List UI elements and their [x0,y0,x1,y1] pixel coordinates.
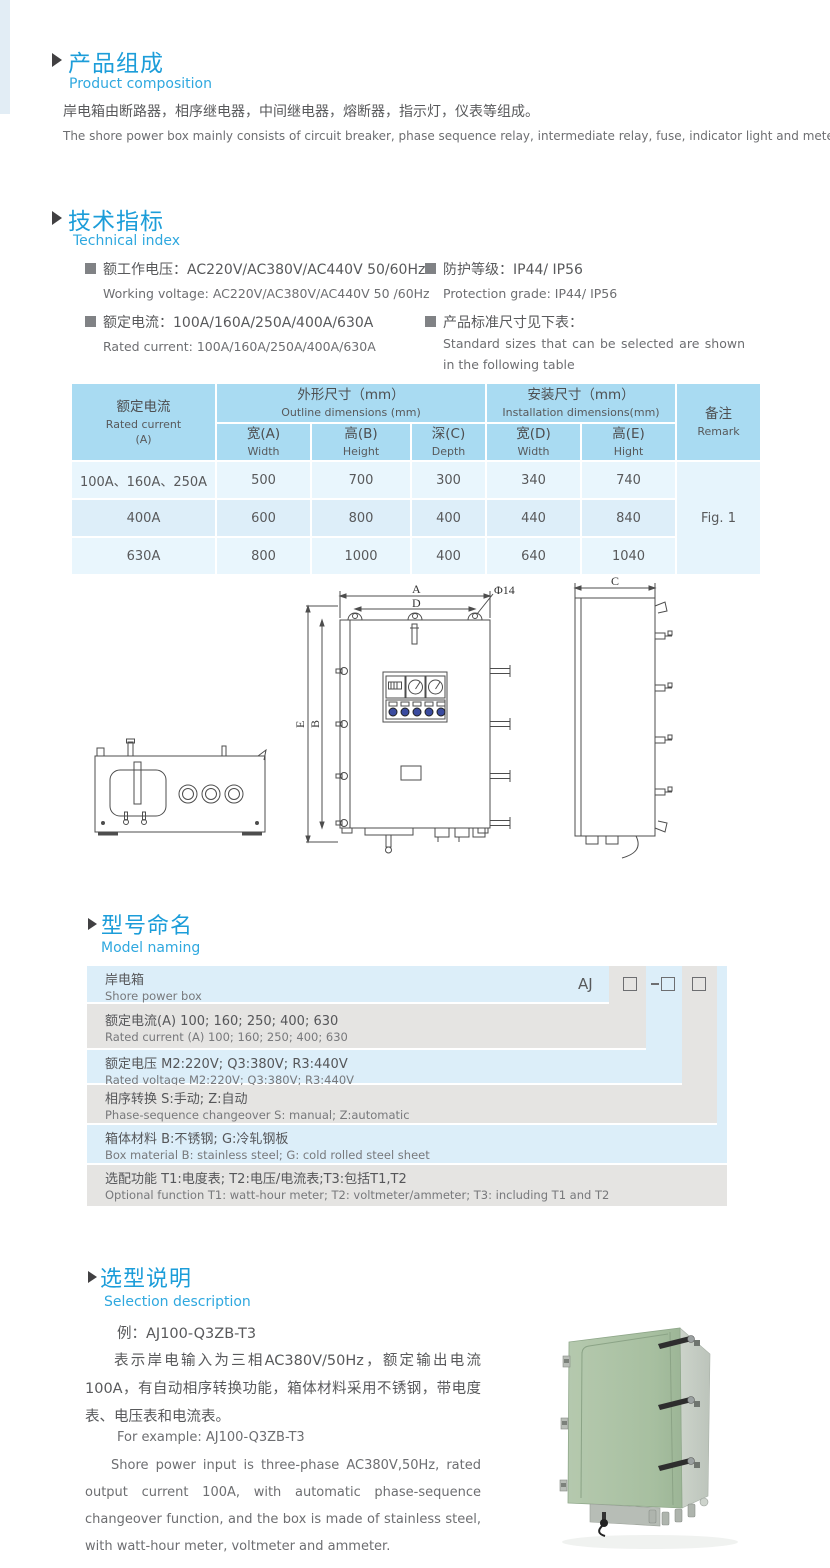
model-row-optional-function: 选配功能 T1:电度表; T2:电压/电流表;T3:包括T1,T2Optiona… [87,1165,727,1206]
spec-rated-current-en: Rated current: 100A/160A/250A/400A/630A [103,339,376,354]
spec-working-voltage-en: Working voltage: AC220V/AC380V/AC440V 50… [103,286,430,301]
model-code-box [692,977,706,991]
cell-rated: 400A [71,499,216,537]
bullet-square-icon [425,316,436,327]
selection-example-en: For example: AJ100-Q3ZB-T3 [117,1430,305,1445]
cell-height-b: 800 [311,499,411,537]
cell-remark: Fig. 1 [676,461,761,575]
box-front-face [568,1328,682,1508]
cell-width-d: 340 [486,461,581,499]
catalog-page: 产品组成 Product composition 岸电箱由断路器，相序继电器，中… [0,0,830,1568]
bullet-square-icon [425,263,436,274]
col-header-rated-current: 额定电流 Rated current (A) [71,383,216,461]
spec-working-voltage-zh: 额工作电压：AC220V/AC380V/AC440V 50/60Hz [85,259,425,279]
page-edge-strip [0,0,10,114]
bottom-view-drawing [95,739,266,834]
cell-width-d: 440 [486,499,581,537]
cell-width-d: 640 [486,537,581,575]
col-header-depth-c: 深(C)Depth [411,423,486,461]
model-row-shore-power-box: 岸电箱Shore power box [87,966,609,1002]
latch-icon [655,631,672,795]
cell-rated: 630A [71,537,216,575]
col-header-install-dims: 安装尺寸（mm） Installation dimensions(mm) [486,383,676,423]
selection-body-en: Shore power input is three-phase AC380V,… [85,1452,481,1560]
spec-protection-zh: 防护等级：IP44/ IP56 [425,259,583,279]
dimensions-table: 额定电流 Rated current (A) 外形尺寸（mm） Outline … [70,382,762,576]
dim-label-a: A [412,582,421,596]
side-view-drawing [575,583,672,858]
indicator-light-icon [389,702,445,716]
composition-body-en: The shore power box mainly consists of c… [63,129,830,143]
cell-height-e: 840 [581,499,676,537]
latch-icon [490,665,510,829]
dim-label-d: D [412,596,421,610]
table-row: 630A 800 1000 400 640 1040 [71,537,761,575]
model-code-box [661,977,675,991]
spec-standard-sizes-zh: 产品标准尺寸见下表： [425,312,583,332]
section-arrow-icon [52,53,62,67]
composition-title-en: Product composition [69,76,212,92]
model-row-box-material: 箱体材料 B:不锈钢; G:冷轧钢板Box material B: stainl… [87,1125,727,1163]
box-side-face [680,1328,710,1508]
cell-width-a: 800 [216,537,311,575]
col-header-height-e: 高(E)Hight [581,423,676,461]
section-arrow-icon [52,211,62,225]
spec-rated-current-zh: 额定电流：100A/160A/250A/400A/630A [85,312,373,332]
cell-height-b: 1000 [311,537,411,575]
dim-label-phi14: Φ14 [494,583,515,597]
cell-rated: 100A、160A、250A [71,461,216,499]
control-panel-drawing [383,672,447,722]
cell-depth-c: 400 [411,537,486,575]
cell-depth-c: 300 [411,461,486,499]
model-title-zh: 型号命名 [101,908,193,940]
dim-label-e: E [293,721,307,728]
product-photo [532,1292,800,1560]
front-view-drawing [306,591,510,853]
bullet-square-icon [85,316,96,327]
composition-title-zh: 产品组成 [68,44,164,78]
technical-title-en: Technical index [73,233,180,249]
col-header-width-a: 宽(A)Width [216,423,311,461]
col-header-remark: 备注 Remark [676,383,761,461]
col-header-outline-dims: 外形尺寸（mm） Outline dimensions (mm) [216,383,486,423]
model-row-rated-current: 额定电流(A) 100; 160; 250; 400; 630Rated cur… [87,1004,646,1048]
hinge-icon [336,668,348,827]
model-title-en: Model naming [101,940,200,956]
selection-title-zh: 选型说明 [100,1261,192,1293]
technical-drawing-fig1: A D Φ14 E B C [70,576,760,876]
selection-body-zh: 表示岸电输入为三相AC380V/50Hz，额定输出电流100A，有自动相序转换功… [85,1347,481,1431]
dim-label-b: B [308,720,322,728]
cell-height-e: 740 [581,461,676,499]
selection-title-en: Selection description [104,1294,251,1310]
section-arrow-icon [88,1271,97,1283]
cell-depth-c: 400 [411,499,486,537]
cell-width-a: 500 [216,461,311,499]
shadow [562,1535,738,1549]
spec-protection-en: Protection grade: IP44/ IP56 [443,286,617,301]
selection-example-zh: 例：AJ100-Q3ZB-T3 [117,1322,256,1343]
dim-label-c: C [611,576,619,588]
spec-standard-sizes-en: Standard sizes that can be selected are … [443,333,745,375]
bullet-square-icon [85,263,96,274]
technical-title-zh: 技术指标 [68,202,164,236]
model-code-box [623,977,637,991]
cell-height-b: 700 [311,461,411,499]
model-row-phase-changeover: 相序转换 S:手动; Z:自动Phase-sequence changeover… [87,1085,717,1123]
cell-height-e: 1040 [581,537,676,575]
model-code-dash [651,983,659,985]
model-row-rated-voltage: 额定电压 M2:220V; Q3:380V; R3:440VRated volt… [87,1050,682,1083]
col-header-width-d: 宽(D)Width [486,423,581,461]
cell-width-a: 600 [216,499,311,537]
composition-body-zh: 岸电箱由断路器，相序继电器，中间继电器，熔断器，指示灯，仪表等组成。 [63,101,539,121]
model-naming-diagram: 岸电箱Shore power box 额定电流(A) 100; 160; 250… [87,966,745,1208]
table-row: 100A、160A、250A 500 700 300 340 740 Fig. … [71,461,761,499]
table-row: 400A 600 800 400 440 840 [71,499,761,537]
section-arrow-icon [88,918,97,930]
model-prefix: AJ [578,975,593,993]
col-header-height-b: 高(B)Height [311,423,411,461]
